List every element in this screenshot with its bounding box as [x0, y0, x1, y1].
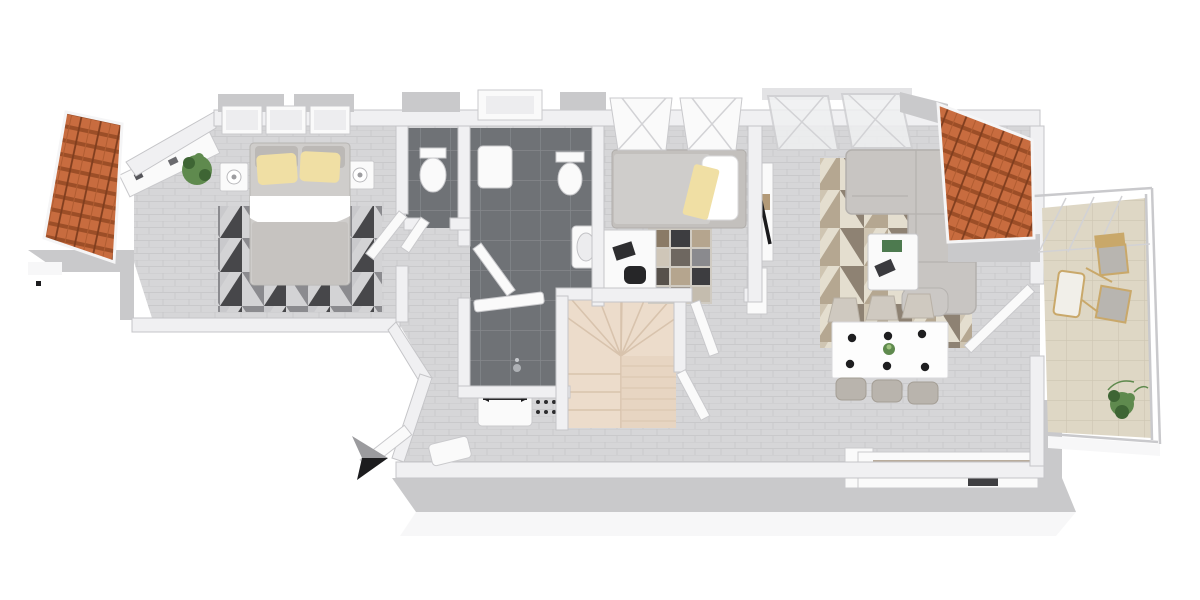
double-bed — [250, 143, 350, 285]
wooden-chair — [1096, 286, 1131, 323]
nightstand-left — [220, 163, 248, 191]
dining-chair — [908, 382, 938, 404]
dining-chair — [866, 296, 898, 320]
staircase — [566, 294, 676, 428]
dining-chair — [872, 380, 902, 402]
green-book — [882, 240, 902, 252]
duvet-fold — [250, 196, 350, 226]
floor-plan-canvas — [0, 0, 1200, 600]
pillow-right — [299, 151, 341, 183]
blanket — [252, 222, 348, 284]
dining-chair — [902, 294, 934, 318]
pillow-left — [256, 153, 298, 186]
radiator — [478, 394, 532, 426]
shower-unit — [478, 146, 512, 188]
desk-chair — [624, 266, 646, 284]
wc — [420, 148, 446, 192]
floor-plan-svg — [0, 0, 1200, 600]
lounge-chair — [1053, 270, 1085, 317]
wooden-chair — [1097, 244, 1128, 275]
single-bed — [612, 150, 746, 228]
left-eave — [28, 250, 134, 320]
roof-panel-left — [44, 112, 122, 262]
dining-chair — [836, 378, 866, 400]
coffee-table — [868, 234, 918, 290]
desk — [600, 230, 656, 288]
toilet — [556, 152, 584, 195]
dining-chair — [828, 298, 860, 322]
dining-set — [828, 294, 948, 404]
